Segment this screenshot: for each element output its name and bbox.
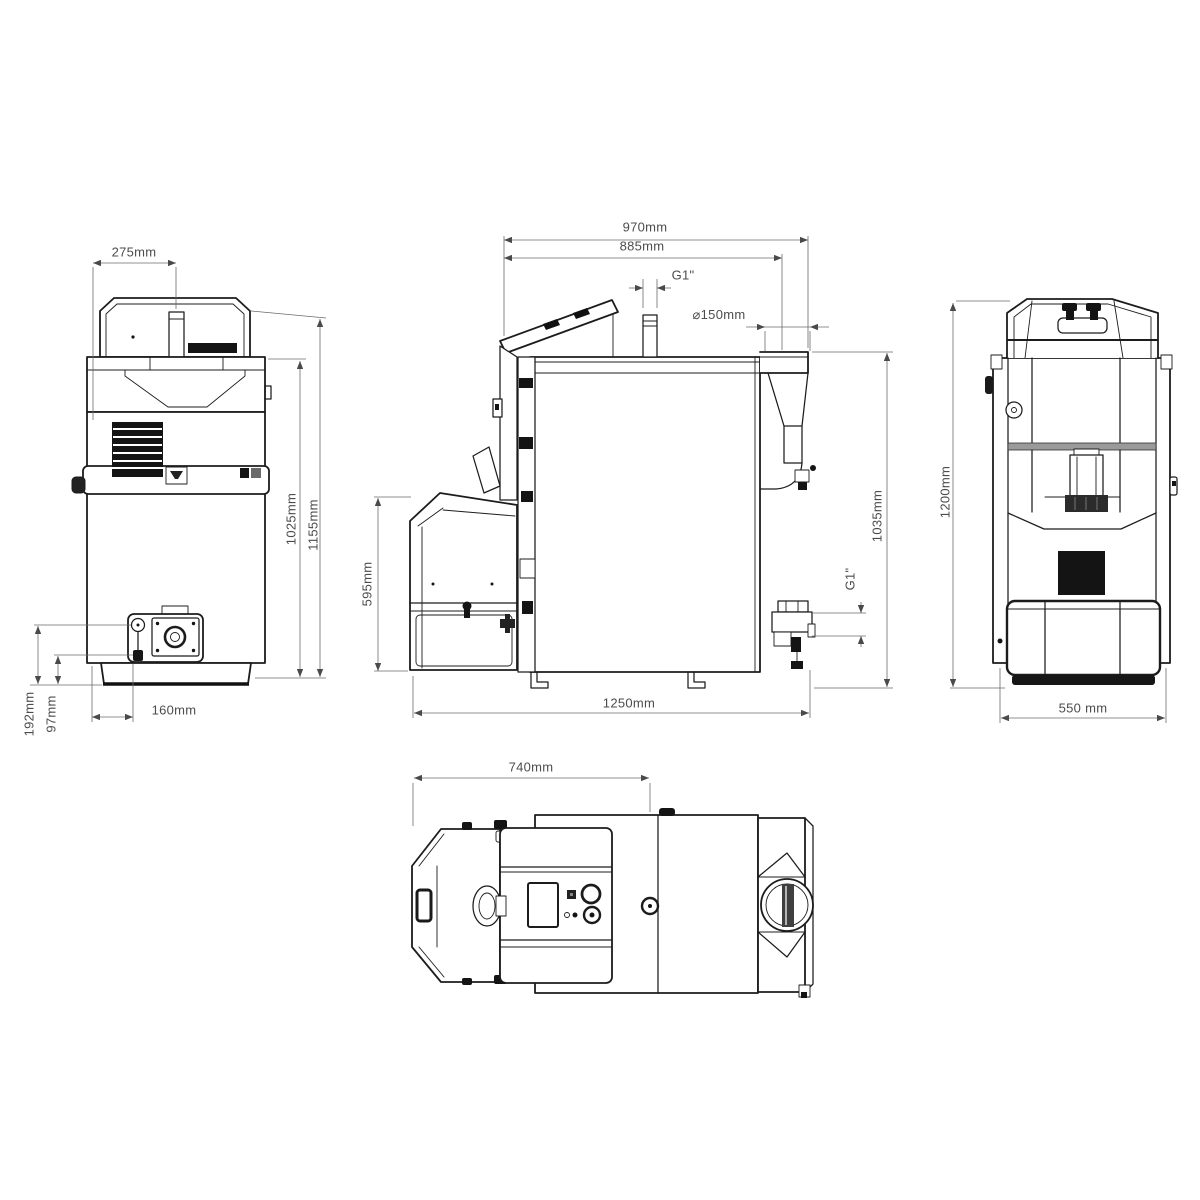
hopper-lever: [473, 447, 500, 493]
dim-front-top-width: 275mm: [112, 245, 157, 260]
top-control-box: [500, 828, 612, 983]
dim-rear-total-height: 1200mm: [938, 466, 953, 518]
front-view-drawing: [30, 263, 326, 722]
dim-front-burner-offset: 160mm: [152, 703, 197, 718]
dim-side-depth-body: 885mm: [620, 239, 665, 254]
front-lid-vent: [188, 343, 237, 353]
top-view-drawing: [412, 778, 813, 998]
flue-outlet: [784, 426, 802, 463]
technical-drawing: [0, 0, 1200, 1200]
dim-side-return-connection: G1": [843, 568, 858, 591]
dim-side-flow-connection: G1": [672, 268, 695, 283]
side-view-drawing: [374, 236, 893, 718]
flow-connection-stub: [1062, 303, 1077, 311]
top-flue-section: [758, 818, 813, 998]
dim-side-connection-height: 1035mm: [870, 490, 885, 542]
front-base: [101, 663, 251, 684]
dim-side-flue-diameter: ⌀150mm: [693, 307, 746, 323]
dim-front-burner-axis: 192mm: [22, 692, 37, 737]
front-hopper-section: [87, 357, 271, 412]
front-handle-band: [72, 466, 269, 494]
rear-opening: [1058, 551, 1105, 595]
rear-top-slot: [1058, 318, 1107, 333]
boiler-dimensional-drawing: 275mm 1025mm 1155mm 160mm 192mm 97mm 970…: [0, 0, 1200, 1200]
hopper-slot-handle: [417, 890, 431, 921]
front-door-handle: [72, 477, 85, 493]
front-burner-assembly: [128, 606, 203, 662]
dim-front-body-height: 1025mm: [284, 493, 299, 545]
side-return-fitting: [772, 601, 815, 669]
dim-side-hopper-height: 595mm: [360, 562, 375, 607]
dim-side-depth-top: 970mm: [623, 220, 668, 235]
dim-side-total-depth: 1250mm: [603, 696, 655, 711]
rear-view-drawing: [950, 299, 1177, 723]
burner-tube: [165, 627, 185, 647]
side-flue-assembly: [760, 352, 816, 490]
return-connection-stub: [1086, 303, 1101, 311]
front-air-grille: [112, 422, 163, 467]
dim-top-front-width: 740mm: [509, 760, 554, 775]
rear-chimney-connector: [1065, 449, 1108, 512]
control-knob-1: [582, 885, 600, 903]
side-feet: [531, 672, 705, 688]
front-hopper-lid: [100, 298, 250, 357]
rear-sensor-port: [1006, 402, 1022, 418]
rear-base: [1007, 601, 1160, 685]
dim-front-drain-height: 97mm: [44, 695, 59, 732]
drain-cock: [133, 650, 143, 661]
control-display: [528, 883, 558, 927]
side-boiler-body: [518, 312, 760, 672]
dim-rear-width: 550 mm: [1059, 701, 1108, 716]
dim-front-total-height: 1155mm: [306, 499, 321, 550]
